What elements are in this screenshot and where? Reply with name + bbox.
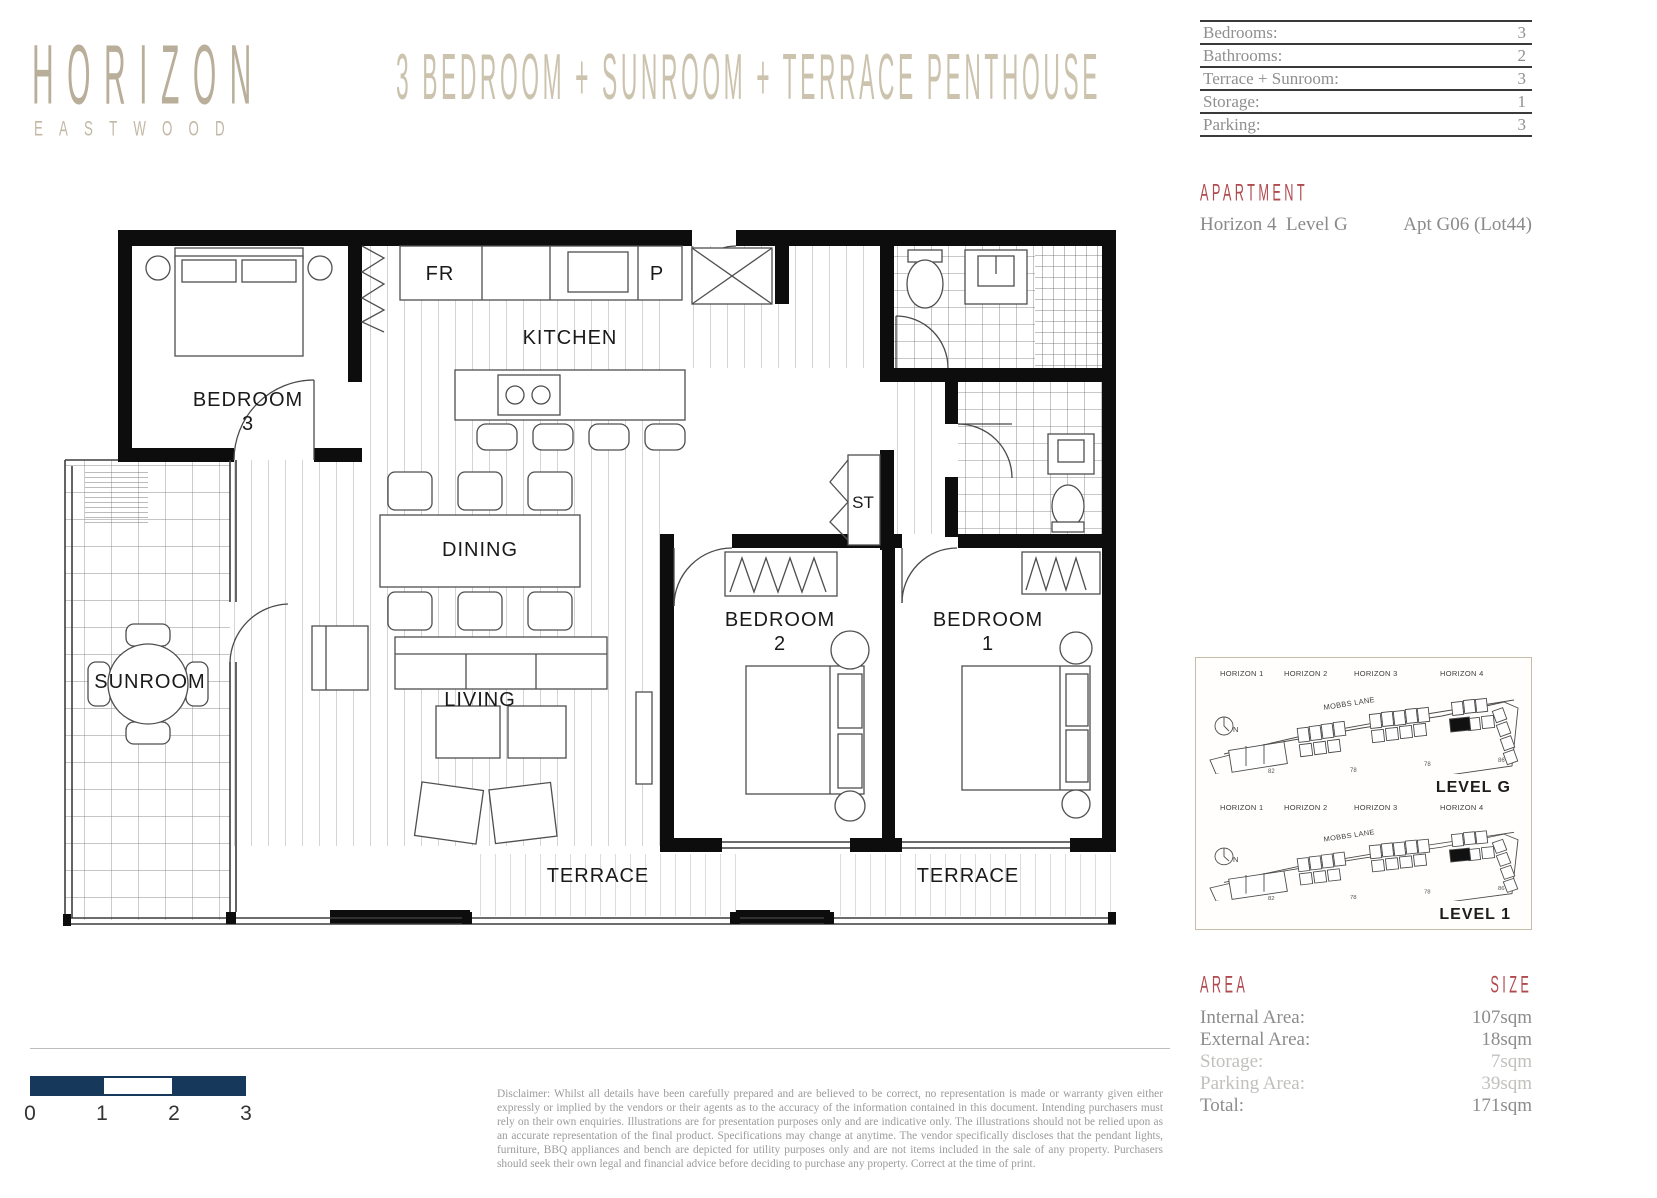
area-value: 7sqm bbox=[1491, 1051, 1532, 1073]
highlighted-unit bbox=[1449, 717, 1470, 732]
area-label: Internal Area: bbox=[1200, 1007, 1305, 1029]
site-map-outline bbox=[1210, 698, 1518, 774]
summary-label: Parking: bbox=[1203, 115, 1261, 135]
area-row: External Area: 18sqm bbox=[1200, 1029, 1532, 1051]
area-table-headings: AREA SIZE bbox=[1200, 982, 1532, 999]
summary-row: Parking: 3 bbox=[1200, 112, 1532, 137]
svg-text:HORIZON 3: HORIZON 3 bbox=[1354, 803, 1397, 812]
svg-text:78: 78 bbox=[1424, 762, 1431, 768]
svg-text:78: 78 bbox=[1350, 895, 1357, 901]
summary-table: Bedrooms: 3 Bathrooms: 2 Terrace + Sunro… bbox=[1200, 20, 1532, 137]
room-label-living: LIVING bbox=[444, 689, 516, 711]
svg-text:HORIZON 2: HORIZON 2 bbox=[1284, 803, 1327, 812]
summary-label: Terrace + Sunroom: bbox=[1203, 69, 1339, 89]
scale-label-1: 1 bbox=[92, 1102, 112, 1126]
svg-text:82: 82 bbox=[1268, 769, 1275, 774]
svg-text:HORIZON 4: HORIZON 4 bbox=[1440, 669, 1484, 678]
room-label-bedroom3: BEDROOM bbox=[193, 389, 303, 411]
site-map-building-labels: HORIZON 1 HORIZON 2 HORIZON 3 HORIZON 4 bbox=[1220, 669, 1484, 678]
bedroom2-furniture bbox=[725, 552, 869, 821]
room-label-storage: ST bbox=[852, 493, 874, 512]
area-value: 171sqm bbox=[1472, 1095, 1532, 1117]
summary-row: Bedrooms: 3 bbox=[1200, 20, 1532, 43]
svg-text:78: 78 bbox=[1350, 768, 1357, 774]
apartment-unit: Apt G06 (Lot44) bbox=[1403, 214, 1532, 236]
bedroom1-furniture bbox=[962, 552, 1100, 818]
footer-divider bbox=[30, 1048, 1170, 1049]
label-fridge: FR bbox=[426, 263, 455, 285]
site-map-lot-numbers: 82 78 78 86 bbox=[1268, 886, 1505, 901]
summary-label: Bedrooms: bbox=[1203, 23, 1278, 43]
room-label-bedroom1: BEDROOM bbox=[933, 609, 1043, 631]
disclaimer-text: Disclaimer: Whilst all details have been… bbox=[497, 1088, 1163, 1171]
bathroom-main-fixtures bbox=[907, 250, 1027, 308]
summary-value: 2 bbox=[1518, 46, 1527, 66]
room-label-bedroom2: BEDROOM bbox=[725, 609, 835, 631]
compass-north: N bbox=[1233, 855, 1239, 864]
scale-bar: 0 1 2 3 bbox=[30, 1076, 280, 1126]
svg-text:HORIZON 1: HORIZON 1 bbox=[1220, 669, 1264, 678]
floor-plan: BEDROOM 3 KITCHEN FR P DINING LIVING SUN… bbox=[30, 222, 1170, 962]
summary-row: Storage: 1 bbox=[1200, 89, 1532, 112]
room-label-terrace-right: TERRACE bbox=[917, 865, 1020, 887]
area-value: 18sqm bbox=[1481, 1029, 1532, 1051]
svg-text:78: 78 bbox=[1424, 890, 1431, 896]
scale-segment-open bbox=[102, 1076, 174, 1096]
svg-text:82: 82 bbox=[1268, 896, 1275, 901]
size-heading: SIZE bbox=[1490, 972, 1532, 999]
brand-subtitle: EASTWOOD bbox=[34, 116, 241, 140]
brand-name: HORIZON bbox=[32, 30, 265, 124]
summary-row: Bathrooms: 2 bbox=[1200, 43, 1532, 66]
level-g-label: LEVEL G bbox=[1202, 779, 1525, 797]
area-row: Parking Area: 39sqm bbox=[1200, 1073, 1532, 1095]
summary-label: Bathrooms: bbox=[1203, 46, 1282, 66]
area-value: 39sqm bbox=[1481, 1073, 1532, 1095]
svg-text:HORIZON 2: HORIZON 2 bbox=[1284, 669, 1328, 678]
area-label: Storage: bbox=[1200, 1051, 1263, 1073]
area-table: AREA SIZE Internal Area: 107sqm External… bbox=[1200, 982, 1532, 1117]
summary-value: 1 bbox=[1518, 92, 1527, 112]
floorplan-brochure-page: HORIZON EASTWOOD 3 BEDROOM + SUNROOM + T… bbox=[0, 0, 1657, 1198]
highlighted-unit bbox=[1449, 848, 1470, 862]
svg-text:HORIZON 1: HORIZON 1 bbox=[1220, 803, 1263, 812]
site-map-building-labels: HORIZON 1 HORIZON 2 HORIZON 3 HORIZON 4 bbox=[1220, 803, 1483, 812]
page-title: 3 BEDROOM + SUNROOM + TERRACE PENTHOUSE bbox=[396, 42, 1101, 116]
summary-value: 3 bbox=[1518, 23, 1527, 43]
area-value: 107sqm bbox=[1472, 1007, 1532, 1029]
summary-value: 3 bbox=[1518, 115, 1527, 135]
area-label: External Area: bbox=[1200, 1029, 1310, 1051]
summary-row: Terrace + Sunroom: 3 bbox=[1200, 66, 1532, 89]
scale-label-2: 2 bbox=[164, 1102, 184, 1126]
brand-subtitle-wrap: EASTWOOD bbox=[34, 116, 252, 132]
scale-label-0: 0 bbox=[20, 1102, 40, 1126]
apartment-heading: APARTMENT bbox=[1200, 180, 1308, 207]
svg-text:86: 86 bbox=[1498, 886, 1505, 892]
room-label-bedroom3-num: 3 bbox=[242, 413, 254, 435]
room-label-bedroom2-num: 2 bbox=[774, 633, 786, 655]
room-label-terrace-center: TERRACE bbox=[547, 865, 650, 887]
site-map-level-1: HORIZON 1 HORIZON 2 HORIZON 3 HORIZON 4 … bbox=[1202, 797, 1525, 901]
room-label-dining: DINING bbox=[442, 539, 518, 561]
room-label-sunroom: SUNROOM bbox=[94, 671, 205, 693]
apartment-heading-wrap: APARTMENT bbox=[1200, 190, 1327, 208]
room-label-bedroom1-num: 1 bbox=[982, 633, 994, 655]
room-label-kitchen: KITCHEN bbox=[523, 327, 618, 349]
scale-segment-filled bbox=[30, 1076, 102, 1096]
area-label: Parking Area: bbox=[1200, 1073, 1305, 1095]
street-label: MOBBS LANE bbox=[1323, 827, 1375, 843]
area-row-total: Total: 171sqm bbox=[1200, 1095, 1532, 1117]
summary-label: Storage: bbox=[1203, 92, 1260, 112]
svg-text:HORIZON 3: HORIZON 3 bbox=[1354, 669, 1398, 678]
brand-logo: HORIZON bbox=[32, 30, 342, 75]
area-heading: AREA bbox=[1200, 972, 1248, 999]
area-label: Total: bbox=[1200, 1095, 1244, 1117]
level-1-label: LEVEL 1 bbox=[1202, 906, 1525, 924]
site-map-level-g: HORIZON 1 HORIZON 2 HORIZON 3 HORIZON 4 … bbox=[1202, 662, 1525, 774]
site-map-box: HORIZON 1 HORIZON 2 HORIZON 3 HORIZON 4 … bbox=[1195, 657, 1532, 930]
apartment-info: Horizon 4 Level G Apt G06 (Lot44) bbox=[1200, 214, 1532, 236]
street-label: MOBBS LANE bbox=[1323, 695, 1376, 712]
compass-north: N bbox=[1233, 725, 1239, 734]
svg-text:86: 86 bbox=[1498, 758, 1505, 764]
svg-text:HORIZON 4: HORIZON 4 bbox=[1440, 803, 1483, 812]
summary-value: 3 bbox=[1518, 69, 1527, 89]
site-map-outline bbox=[1210, 831, 1518, 901]
scale-label-3: 3 bbox=[236, 1102, 256, 1126]
area-row: Internal Area: 107sqm bbox=[1200, 1007, 1532, 1029]
apartment-location: Horizon 4 Level G bbox=[1200, 214, 1348, 236]
scale-segment-filled bbox=[174, 1076, 246, 1096]
area-row: Storage: 7sqm bbox=[1200, 1051, 1532, 1073]
label-pantry: P bbox=[650, 263, 664, 285]
